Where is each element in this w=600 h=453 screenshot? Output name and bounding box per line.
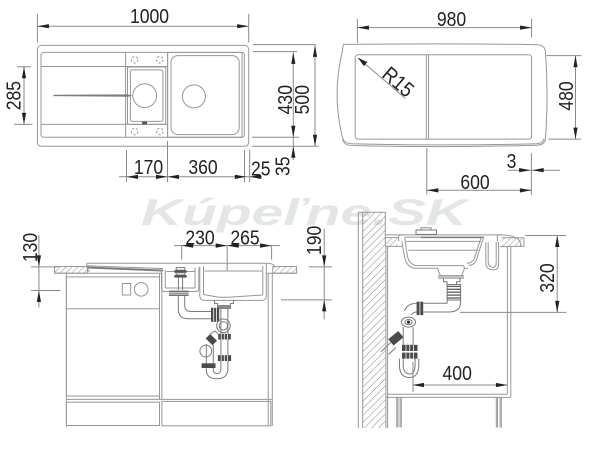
svg-text:400: 400 (443, 362, 472, 384)
svg-text:285: 285 (2, 81, 24, 110)
svg-text:265: 265 (230, 226, 259, 248)
svg-text:360: 360 (188, 156, 217, 178)
svg-text:130: 130 (19, 233, 41, 262)
svg-text:3: 3 (507, 150, 517, 172)
svg-text:980: 980 (437, 8, 466, 30)
svg-text:25: 25 (251, 158, 271, 180)
svg-text:480: 480 (555, 81, 577, 110)
svg-text:600: 600 (460, 171, 489, 193)
svg-text:500: 500 (291, 85, 313, 114)
svg-text:320: 320 (536, 263, 558, 292)
svg-text:35: 35 (272, 156, 294, 176)
svg-text:1000: 1000 (130, 5, 169, 27)
svg-text:230: 230 (185, 226, 214, 248)
svg-text:170: 170 (134, 156, 163, 178)
svg-text:190: 190 (303, 226, 325, 255)
